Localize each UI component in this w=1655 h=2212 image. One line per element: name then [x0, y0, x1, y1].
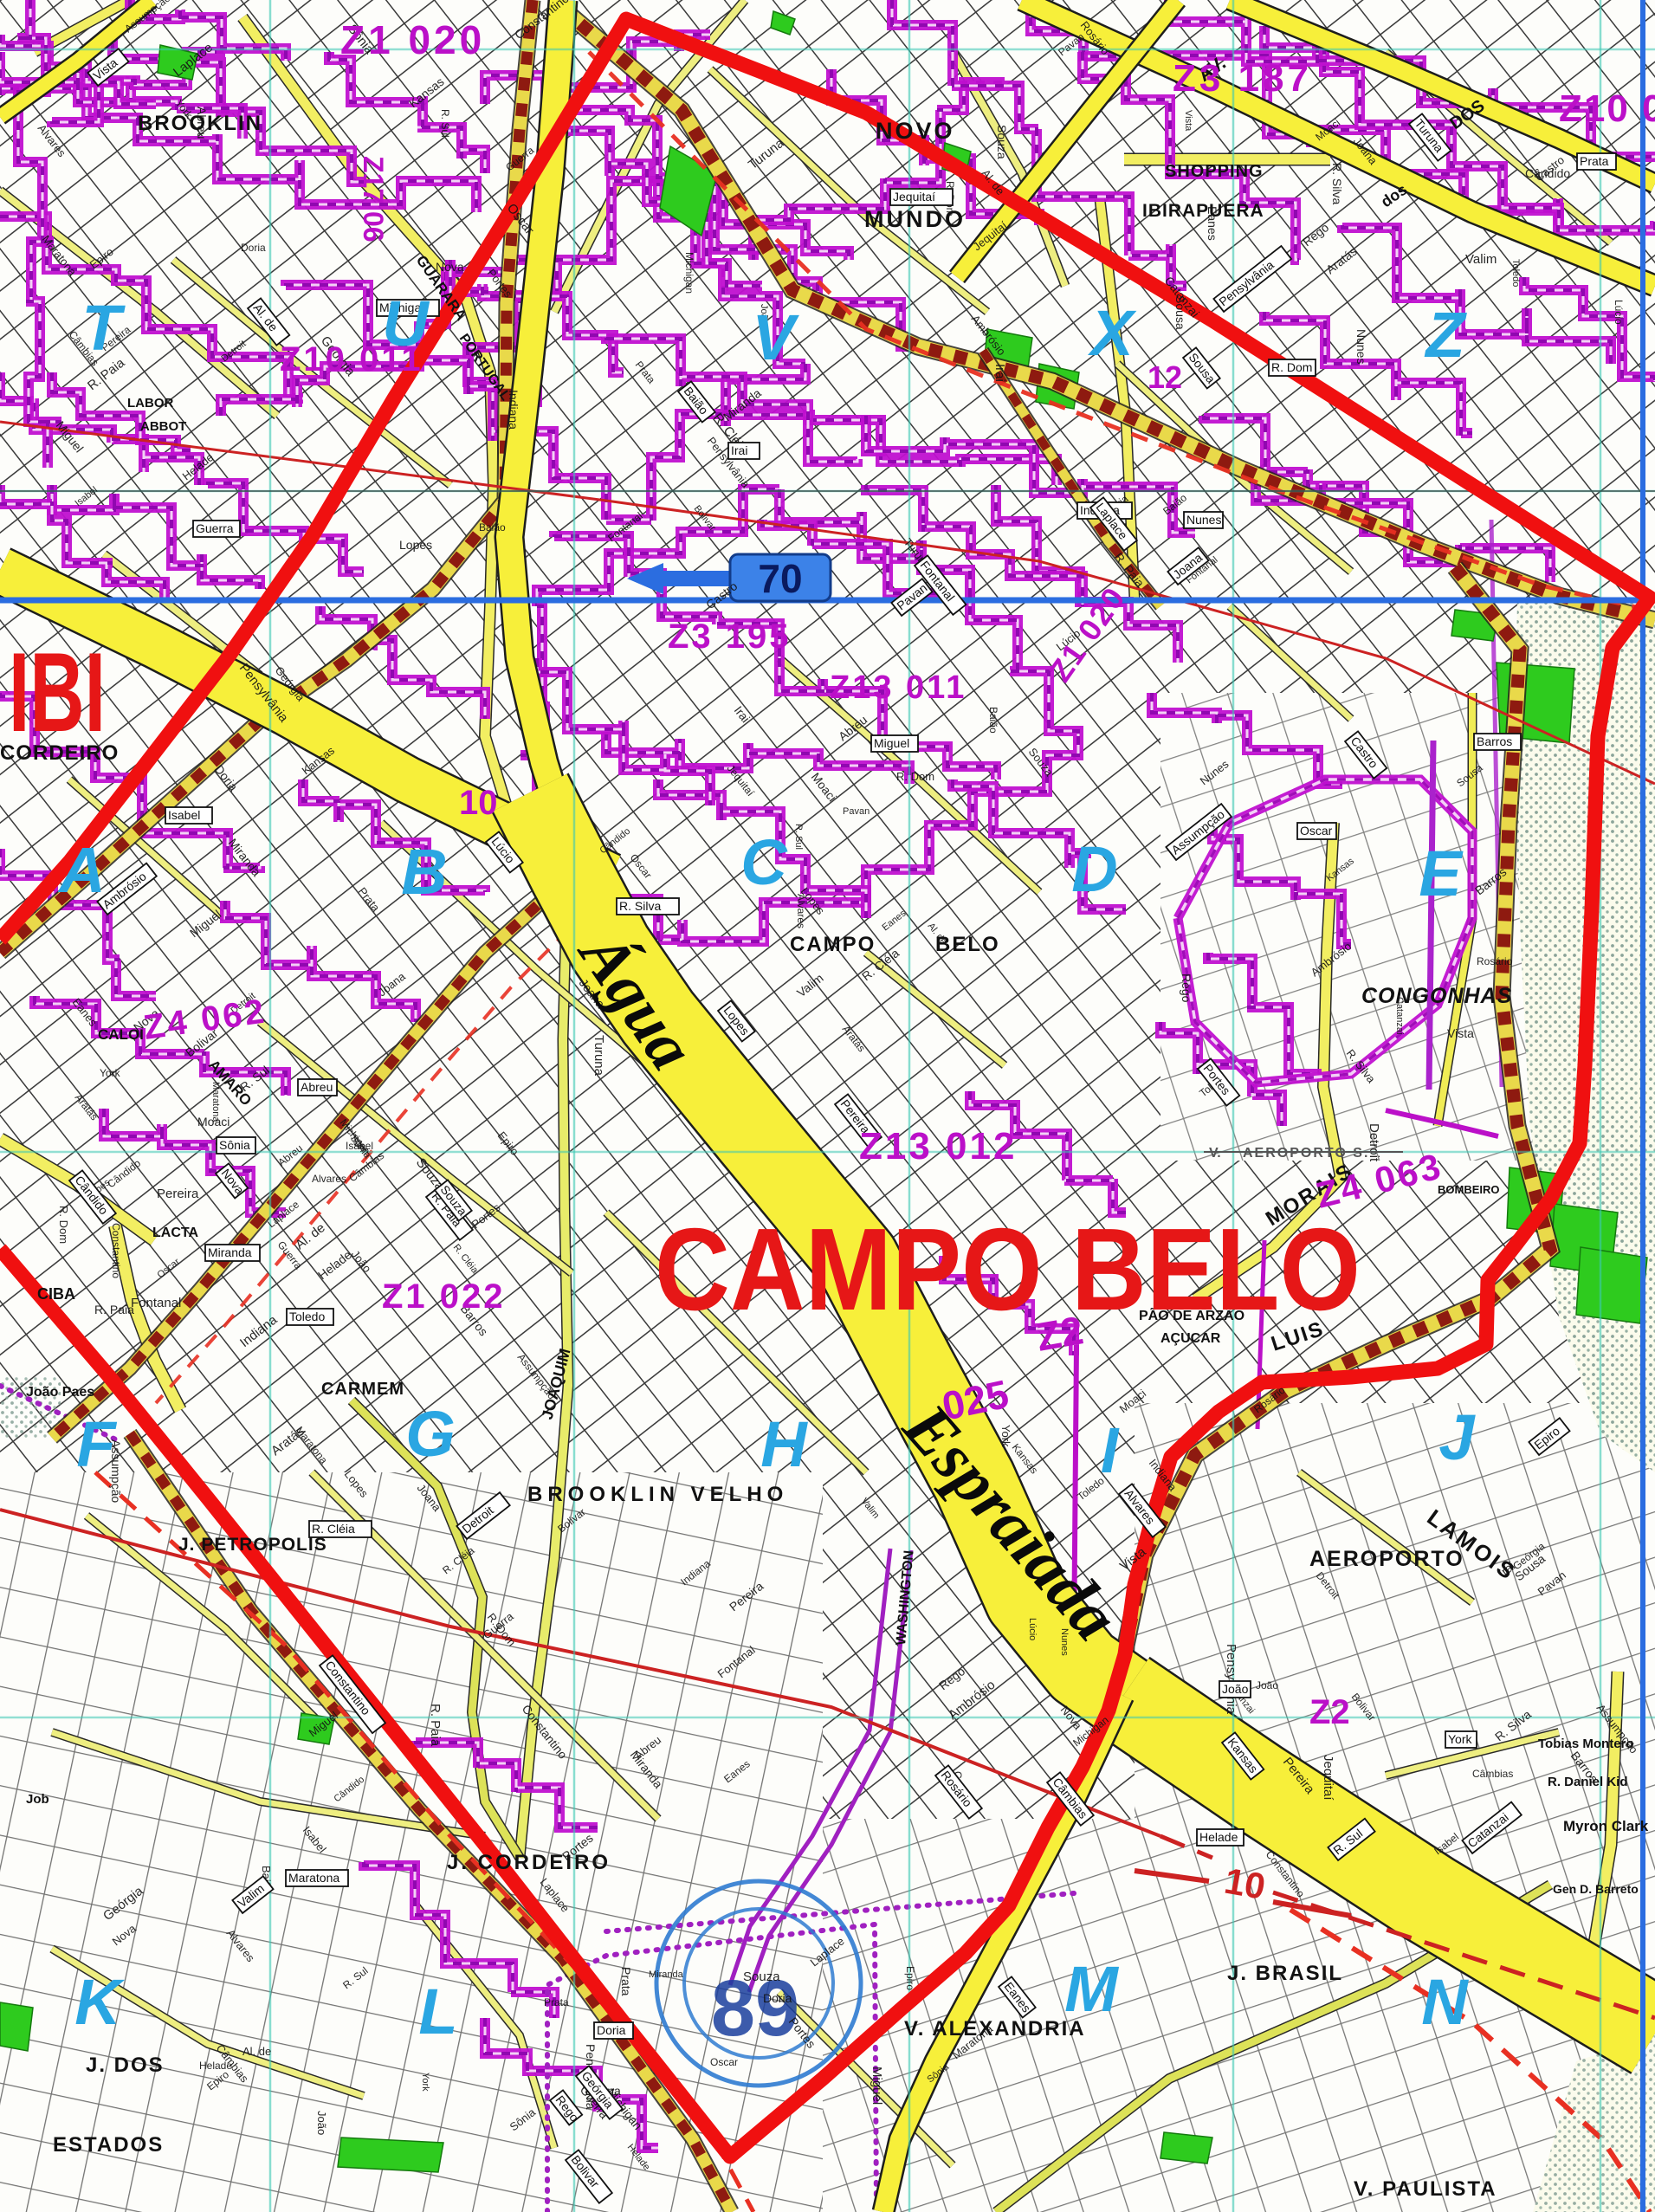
svg-text:Maratona: Maratona	[288, 1871, 339, 1885]
svg-text:Jequitaí: Jequitaí	[893, 190, 935, 204]
svg-text:Epiro: Epiro	[904, 1966, 916, 1990]
svg-text:X: X	[1087, 297, 1137, 369]
svg-text:Gen D. Barreto: Gen D. Barreto	[1553, 1882, 1639, 1896]
svg-text:BROOKLIN VELHO: BROOKLIN VELHO	[527, 1483, 788, 1506]
svg-text:K: K	[74, 1966, 125, 2038]
svg-text:Baião: Baião	[987, 707, 999, 734]
svg-text:70: 70	[758, 556, 802, 601]
svg-text:Tobias Montero: Tobias Montero	[1538, 1737, 1634, 1751]
svg-text:LABOR: LABOR	[127, 396, 173, 411]
svg-text:Z2: Z2	[1309, 1693, 1350, 1731]
svg-text:Moaci: Moaci	[197, 1115, 230, 1129]
svg-text:R. Sul: R. Sul	[793, 824, 804, 850]
svg-text:R. Paia: R. Paia	[94, 1303, 134, 1316]
svg-text:Michigan: Michigan	[683, 252, 695, 294]
svg-text:10: 10	[1221, 1860, 1268, 1907]
svg-text:Al. de: Al. de	[242, 2045, 271, 2058]
svg-text:Z1 020: Z1 020	[340, 17, 485, 62]
svg-text:João: João	[1256, 1679, 1278, 1691]
svg-text:IBI: IBI	[9, 629, 106, 755]
svg-text:D: D	[1071, 833, 1117, 905]
svg-text:Pensylvânia: Pensylvânia	[1224, 1644, 1238, 1715]
svg-text:CONGONHAS: CONGONHAS	[1361, 984, 1512, 1008]
svg-text:E: E	[1419, 838, 1464, 909]
svg-text:Alvares: Alvares	[312, 1173, 346, 1185]
svg-text:Z13 012: Z13 012	[859, 1125, 1017, 1167]
svg-text:L: L	[418, 1976, 457, 2047]
svg-text:York: York	[100, 1067, 121, 1079]
svg-text:R. Daniel Kid: R. Daniel Kid	[1548, 1775, 1628, 1789]
svg-text:M: M	[1064, 1953, 1119, 2025]
svg-text:NOVO: NOVO	[876, 118, 955, 144]
svg-text:J: J	[1438, 1401, 1476, 1473]
svg-text:Z10 011: Z10 011	[280, 340, 423, 378]
svg-text:CIBA: CIBA	[37, 1285, 75, 1303]
svg-text:LACTA: LACTA	[152, 1226, 198, 1240]
svg-text:J. DOS: J. DOS	[86, 2054, 165, 2077]
svg-text:V: V	[752, 301, 799, 373]
svg-text:Rosário: Rosário	[1477, 955, 1513, 967]
svg-text:Miguel: Miguel	[874, 736, 909, 750]
svg-text:Souza: Souza	[995, 125, 1009, 159]
svg-text:Myron Clark: Myron Clark	[1563, 1818, 1649, 1834]
svg-text:Sônia: Sônia	[219, 1138, 250, 1152]
svg-text:Miguel: Miguel	[870, 2066, 884, 2105]
svg-text:Prata: Prata	[544, 1996, 569, 2008]
svg-text:C: C	[740, 826, 788, 898]
svg-text:J. PETROPOLIS: J. PETROPOLIS	[178, 1535, 327, 1555]
svg-text:ABBOT: ABBOT	[140, 419, 186, 434]
svg-text:Abreu: Abreu	[301, 1080, 333, 1094]
svg-text:CALOI: CALOI	[98, 1026, 144, 1043]
svg-text:Isabel: Isabel	[168, 808, 200, 822]
svg-text:Z17 06: Z17 06	[358, 156, 389, 243]
svg-text:Doria: Doria	[597, 2023, 626, 2037]
svg-text:Barros: Barros	[1477, 734, 1512, 748]
svg-text:Constantino: Constantino	[110, 1223, 122, 1278]
svg-text:10: 10	[459, 784, 498, 822]
svg-text:Oscar: Oscar	[710, 2056, 738, 2068]
svg-text:Nunes: Nunes	[1354, 329, 1368, 364]
svg-text:CAMPO BELO: CAMPO BELO	[655, 1204, 1361, 1335]
svg-text:João: João	[315, 2111, 328, 2135]
svg-text:Toledo: Toledo	[289, 1310, 325, 1323]
svg-text:Pavan: Pavan	[843, 806, 870, 817]
svg-text:Turuna: Turuna	[592, 1035, 606, 1077]
svg-text:Z: Z	[1424, 299, 1467, 371]
svg-text:Prata: Prata	[1580, 154, 1609, 168]
svg-text:R. Dom: R. Dom	[896, 770, 934, 783]
svg-text:H: H	[760, 1408, 808, 1480]
svg-text:V. PAULISTA: V. PAULISTA	[1354, 2177, 1497, 2201]
svg-text:Irai: Irai	[731, 443, 747, 457]
svg-text:Lúcio: Lúcio	[1027, 1618, 1038, 1640]
svg-text:Z3 195: Z3 195	[668, 618, 792, 656]
svg-text:BOMBEIRO: BOMBEIRO	[1438, 1183, 1500, 1196]
svg-text:CAMPO: CAMPO	[790, 933, 876, 956]
svg-text:Lopes: Lopes	[399, 538, 432, 552]
svg-text:Miranda: Miranda	[649, 1969, 684, 1980]
svg-text:Vista: Vista	[1183, 110, 1193, 132]
svg-text:Câmbias: Câmbias	[1472, 1768, 1513, 1780]
svg-text:Doria: Doria	[763, 1991, 792, 2005]
svg-text:Fontanal: Fontanal	[131, 1296, 181, 1310]
svg-text:B: B	[401, 836, 447, 908]
svg-text:João: João	[1222, 1682, 1249, 1696]
svg-text:CARMEM: CARMEM	[321, 1380, 404, 1399]
svg-text:Pereira: Pereira	[157, 1187, 199, 1201]
svg-text:Z1 022: Z1 022	[382, 1277, 506, 1316]
svg-text:Z13 011: Z13 011	[830, 669, 966, 706]
svg-text:BROOKLIN: BROOKLIN	[138, 112, 262, 135]
svg-text:IBIRAPUERA: IBIRAPUERA	[1142, 201, 1264, 221]
svg-text:Valim: Valim	[1465, 252, 1497, 267]
svg-text:R. Paia: R. Paia	[428, 1704, 443, 1747]
svg-text:SHOPPING: SHOPPING	[1165, 162, 1264, 181]
svg-text:Miranda: Miranda	[208, 1245, 252, 1259]
svg-text:R. Silva: R. Silva	[1330, 163, 1344, 204]
svg-text:Prata: Prata	[619, 1967, 633, 1996]
svg-text:Lúcio: Lúcio	[1613, 300, 1625, 325]
svg-text:Doria: Doria	[241, 242, 266, 254]
svg-text:Z3 187: Z3 187	[1173, 57, 1312, 100]
svg-text:BELO: BELO	[935, 933, 1000, 956]
svg-text:Irai: Irai	[992, 364, 1007, 382]
svg-text:York: York	[420, 2073, 430, 2092]
svg-text:Baião: Baião	[479, 521, 506, 534]
svg-text:AEROPORTO S.: AEROPORTO S.	[1243, 1146, 1369, 1161]
svg-text:Toledo: Toledo	[1510, 259, 1521, 287]
svg-text:Z10 0: Z10 0	[1559, 87, 1655, 130]
svg-text:R. Dom: R. Dom	[1271, 360, 1312, 374]
svg-text:Alvares: Alvares	[795, 894, 807, 928]
svg-text:J. BRASIL: J. BRASIL	[1227, 1962, 1343, 1985]
svg-text:A: A	[57, 834, 105, 906]
svg-text:Rego: Rego	[1180, 973, 1193, 1003]
svg-text:Oscar: Oscar	[1300, 824, 1333, 838]
svg-text:Helade: Helade	[1199, 1830, 1238, 1844]
svg-text:Guerra: Guerra	[196, 521, 234, 535]
svg-text:R. Silva: R. Silva	[619, 899, 661, 913]
svg-text:Jequitaí: Jequitaí	[1321, 1755, 1335, 1801]
svg-text:R. Dom: R. Dom	[57, 1206, 70, 1244]
svg-text:ESTADOS: ESTADOS	[53, 2133, 164, 2157]
svg-text:João Paes: João Paes	[26, 1385, 94, 1400]
svg-text:G: G	[405, 1398, 456, 1470]
svg-text:Vista: Vista	[1447, 1026, 1474, 1040]
svg-text:MUNDO: MUNDO	[864, 206, 966, 232]
svg-text:Helade: Helade	[199, 2060, 232, 2072]
svg-text:F: F	[76, 1408, 117, 1480]
svg-text:V.: V.	[1209, 1146, 1221, 1161]
svg-text:Souza: Souza	[743, 1969, 780, 1984]
svg-text:N: N	[1421, 1966, 1469, 2038]
svg-text:Sousa: Sousa	[1173, 295, 1187, 330]
svg-text:T: T	[81, 292, 126, 364]
svg-text:AEROPORTO: AEROPORTO	[1309, 1547, 1464, 1571]
svg-text:I: I	[1101, 1414, 1120, 1486]
svg-text:J. CORDEIRO: J. CORDEIRO	[447, 1851, 611, 1874]
svg-text:Nunes: Nunes	[1186, 513, 1221, 527]
svg-text:R. Sul: R. Sul	[439, 109, 451, 138]
svg-text:York: York	[1448, 1732, 1473, 1746]
svg-text:12: 12	[1148, 359, 1182, 395]
svg-text:York: York	[999, 1425, 1012, 1447]
svg-text:R. Cléia: R. Cléia	[312, 1522, 355, 1536]
svg-text:Job: Job	[26, 1792, 49, 1807]
svg-text:V. ALEXANDRIA: V. ALEXANDRIA	[904, 2017, 1086, 2041]
